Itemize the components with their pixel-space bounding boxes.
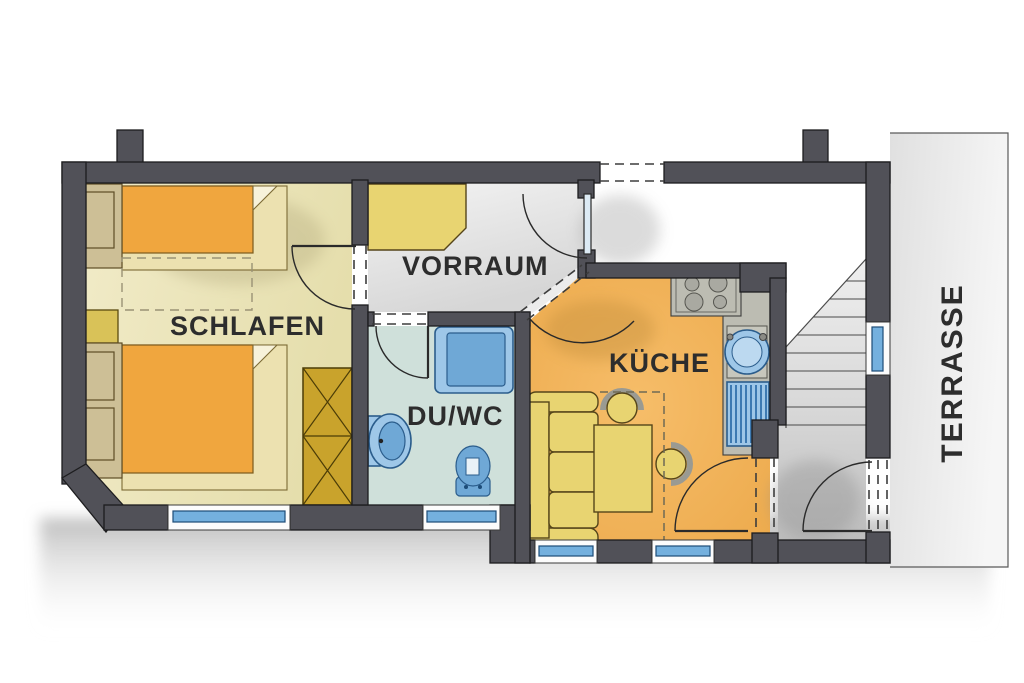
window-duwc [423,505,500,530]
schlafen-wall-upper [352,180,368,245]
room-label-kueche: KÜCHE [609,348,710,379]
chimney-right [803,130,828,164]
kueche-door-jamb-upper [752,420,778,458]
room-label-duwc: DU/WC [407,401,503,432]
right-wall-mid [866,375,890,458]
schlafen-door-opening [354,245,366,305]
bed-upper [78,184,287,270]
dining-table [594,425,652,512]
hall-cabinet [368,184,466,250]
wardrobe [303,368,352,505]
washbasin [368,414,411,468]
floor-plan: SCHLAFEN VORRAUM DU/WC KÜCHE TERRASSE [0,0,1024,683]
sink [725,326,769,378]
right-wall-corner [866,532,890,563]
duwc-door-opening [372,314,428,324]
chimney-left [117,130,143,164]
window-schlafen [168,505,290,530]
room-label-terrasse: TERRASSE [936,273,970,473]
sofa [527,392,598,548]
shower [435,327,513,393]
toilet [456,446,490,496]
floor-plan-drawing [0,0,1024,683]
left-wall [62,162,86,484]
top-wall-left [62,162,600,183]
window-kueche-right [652,540,714,563]
kueche-door-jamb-lower [752,533,778,563]
window-stairs [866,322,890,375]
bed-lower [78,343,287,490]
duwc-kueche-wall [515,312,530,563]
top-wall-opening [600,164,664,181]
room-label-schlafen: SCHLAFEN [170,311,325,342]
top-wall-right [664,162,890,183]
schlafen-wall-lower [352,305,368,505]
right-wall-upper [866,162,890,322]
room-label-vorraum: VORRAUM [402,251,549,282]
kueche-right-wall [770,278,786,425]
window-kueche-left [535,540,597,563]
